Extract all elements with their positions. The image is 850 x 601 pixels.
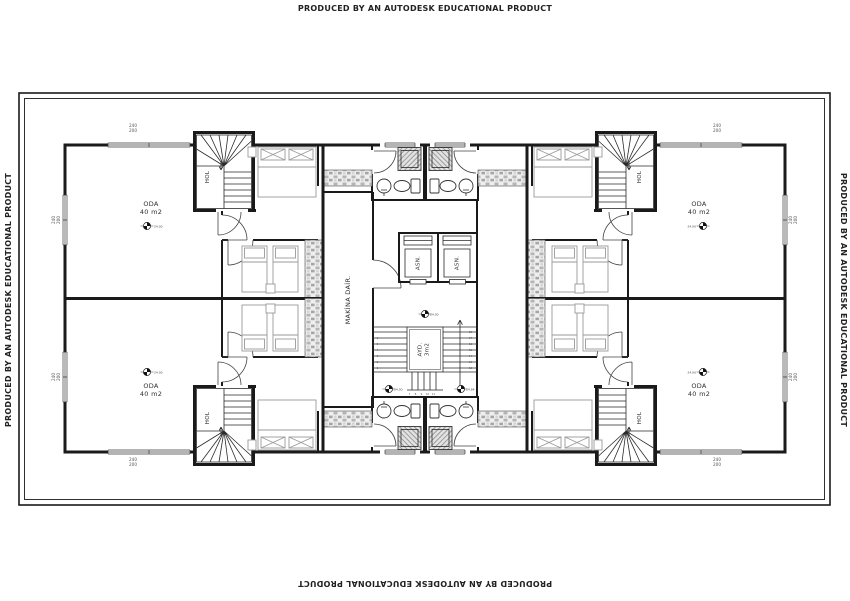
room-level-marker (141, 222, 154, 229)
svg-text:16: 16 (469, 342, 473, 346)
svg-text:200: 200 (713, 462, 721, 467)
room-level-marker (697, 368, 710, 375)
svg-text:200: 200 (56, 216, 61, 224)
watermark-bottom: PRODUCED BY AN AUTODESK EDUCATIONAL PROD… (298, 579, 553, 588)
floor-plan-canvas: PRODUCED BY AN AUTODESK EDUCATIONAL PROD… (0, 0, 850, 601)
svg-text:24.00: 24.00 (687, 225, 696, 229)
svg-text:14: 14 (469, 354, 473, 358)
room-level-marker (697, 222, 710, 229)
svg-text:ODA: ODA (691, 382, 707, 390)
watermark-left: PRODUCED BY AN AUTODESK EDUCATIONAL PROD… (4, 173, 13, 428)
apartment-bottom-left (63, 297, 426, 466)
svg-text:7: 7 (409, 392, 411, 396)
svg-text:24.84: 24.84 (466, 388, 475, 392)
machine-room-door (373, 260, 401, 288)
svg-text:17: 17 (469, 336, 473, 340)
svg-text:8: 8 (415, 392, 417, 396)
elevator-label: ASN. (416, 256, 422, 270)
svg-text:24.00: 24.00 (394, 388, 403, 392)
svg-text:10: 10 (426, 392, 430, 396)
svg-text:200: 200 (793, 216, 798, 224)
drawing-sheet: PRODUCED BY AN AUTODESK EDUCATIONAL PROD… (0, 0, 850, 601)
apartment-bottom-right (424, 297, 787, 466)
room-name: ODA (143, 200, 159, 208)
watermark-top: PRODUCED BY AN AUTODESK EDUCATIONAL PROD… (298, 4, 553, 13)
svg-text:ODA: ODA (143, 382, 159, 390)
apartment-top-right (424, 131, 787, 300)
room-area: 40 m2 (140, 208, 162, 216)
svg-text:24.00: 24.00 (154, 371, 163, 375)
svg-text:ODA: ODA (691, 200, 707, 208)
svg-text:HOL: HOL (637, 170, 643, 183)
lightwell-name: AYD. (418, 343, 424, 357)
svg-text:40 m2: 40 m2 (688, 208, 710, 216)
svg-text:200: 200 (793, 373, 798, 381)
watermark-right: PRODUCED BY AN AUTODESK EDUCATIONAL PROD… (839, 173, 848, 428)
apartment-top-left (63, 131, 426, 300)
svg-text:9: 9 (421, 392, 423, 396)
svg-text:40 m2: 40 m2 (140, 390, 162, 398)
svg-text:18: 18 (469, 330, 473, 334)
svg-text:13: 13 (469, 360, 473, 364)
svg-text:15: 15 (469, 348, 473, 352)
svg-text:HOL: HOL (205, 411, 211, 424)
svg-text:200: 200 (713, 128, 721, 133)
elevator-shafts (398, 200, 477, 397)
svg-text:11: 11 (432, 392, 436, 396)
svg-text:40 m2: 40 m2 (688, 390, 710, 398)
svg-text:24.00: 24.00 (154, 225, 163, 229)
svg-text:200: 200 (56, 373, 61, 381)
lightwell-area: 3m2 (425, 343, 431, 356)
svg-text:200: 200 (129, 462, 137, 467)
stair-direction-arrow (458, 320, 463, 388)
machine-room-label: MAKİNA DAİR. (343, 276, 352, 325)
svg-text:12: 12 (469, 366, 473, 370)
svg-text:HOL: HOL (205, 170, 211, 183)
room-level-marker (141, 368, 154, 375)
svg-text:24.00: 24.00 (430, 313, 439, 317)
svg-text:HOL: HOL (637, 411, 643, 424)
svg-text:200: 200 (129, 128, 137, 133)
svg-text:24.00: 24.00 (687, 371, 696, 375)
elevator-label: ASN. (455, 256, 461, 270)
